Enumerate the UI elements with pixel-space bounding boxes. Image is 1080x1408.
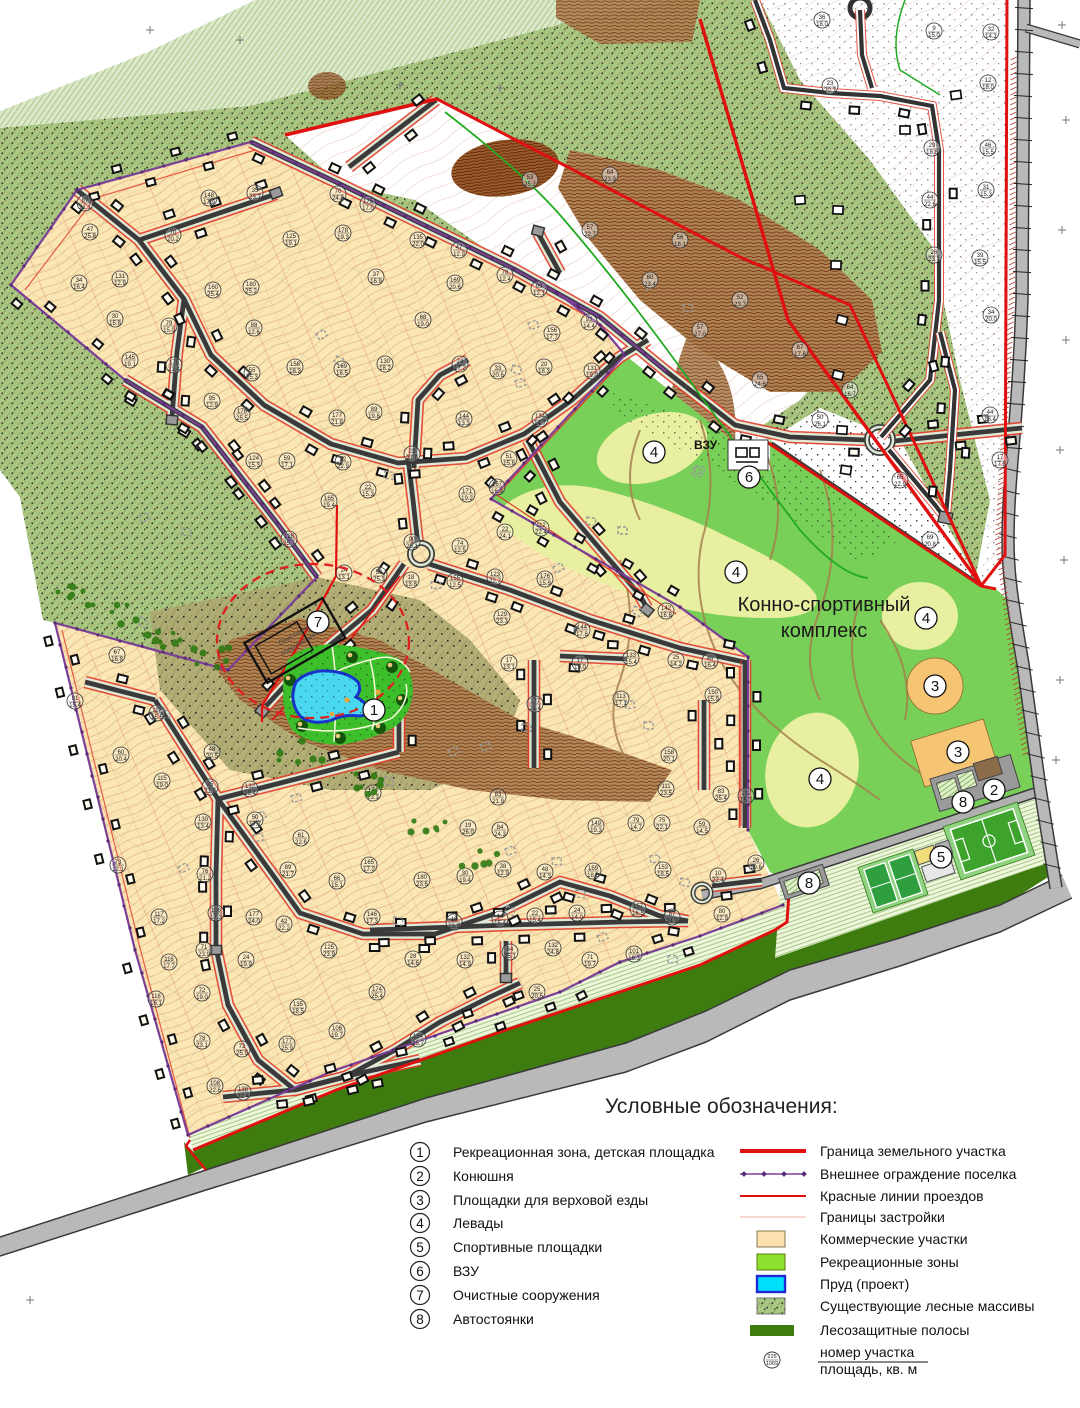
svg-text:21.9: 21.9 [492, 799, 504, 805]
svg-text:24: 24 [243, 955, 250, 961]
svg-text:17.0: 17.0 [362, 206, 374, 212]
svg-text:16.4: 16.4 [73, 285, 85, 291]
svg-text:19.0: 19.0 [586, 373, 598, 379]
svg-text:17: 17 [997, 455, 1004, 461]
svg-text:23.3: 23.3 [448, 924, 460, 930]
svg-text:24.0: 24.0 [248, 919, 260, 925]
svg-text:25.2: 25.2 [245, 289, 257, 295]
svg-text:64: 64 [607, 170, 614, 176]
svg-text:Рекреационные зоны: Рекреационные зоны [820, 1254, 959, 1270]
svg-text:19: 19 [465, 823, 472, 829]
svg-text:25.9: 25.9 [236, 1051, 248, 1057]
svg-text:38: 38 [500, 864, 507, 870]
svg-text:12.4: 12.4 [499, 277, 511, 283]
svg-text:18.0: 18.0 [816, 22, 828, 28]
svg-text:47: 47 [87, 227, 94, 233]
svg-text:23.3: 23.3 [496, 619, 508, 625]
svg-text:95: 95 [209, 396, 216, 402]
svg-text:17.1: 17.1 [281, 463, 293, 469]
svg-text:13.1: 13.1 [503, 665, 515, 671]
svg-text:55: 55 [757, 375, 764, 381]
svg-text:Площадки для верховой езды: Площадки для верховой езды [453, 1192, 648, 1208]
svg-text:16.9: 16.9 [370, 279, 382, 285]
svg-text:18.3: 18.3 [538, 369, 550, 375]
svg-text:12: 12 [985, 78, 992, 84]
svg-text:5: 5 [937, 849, 945, 866]
svg-text:25.1: 25.1 [406, 544, 418, 550]
svg-text:132: 132 [460, 955, 471, 961]
svg-text:16.9: 16.9 [491, 489, 503, 495]
svg-text:23.5: 23.5 [660, 791, 672, 797]
svg-text:Конюшня: Конюшня [453, 1168, 514, 1184]
svg-text:25.8: 25.8 [84, 234, 96, 240]
svg-text:Границы застройки: Границы застройки [820, 1209, 945, 1225]
svg-text:16.8: 16.8 [660, 613, 672, 619]
svg-text:23.1: 23.1 [928, 257, 940, 263]
svg-text:15.4: 15.4 [625, 660, 637, 666]
svg-text:4: 4 [816, 771, 824, 788]
svg-text:ВЗУ: ВЗУ [453, 1263, 479, 1279]
svg-text:Пруд (проект): Пруд (проект) [820, 1276, 909, 1292]
svg-text:15.3: 15.3 [248, 463, 260, 469]
svg-text:18.8: 18.8 [587, 873, 599, 879]
svg-text:17.3: 17.3 [210, 915, 222, 921]
svg-text:Автостоянки: Автостоянки [453, 1311, 534, 1327]
svg-text:15.5: 15.5 [151, 715, 163, 721]
svg-text:Коммерческие участки: Коммерческие участки [820, 1231, 968, 1247]
svg-text:17.2: 17.2 [153, 919, 165, 925]
svg-text:1: 1 [370, 702, 378, 719]
svg-text:17.8: 17.8 [576, 632, 588, 638]
svg-text:67: 67 [797, 345, 804, 351]
svg-text:50: 50 [817, 415, 824, 421]
svg-text:23: 23 [409, 449, 416, 455]
svg-text:19.7: 19.7 [331, 1033, 343, 1039]
svg-text:44: 44 [987, 410, 994, 416]
svg-text:Левады: Левады [453, 1215, 503, 1231]
svg-text:60: 60 [647, 275, 654, 281]
svg-text:6: 6 [745, 469, 753, 486]
svg-text:18.5: 18.5 [292, 1009, 304, 1015]
svg-text:180: 180 [417, 875, 428, 881]
svg-text:20: 20 [541, 362, 548, 368]
svg-text:17.7: 17.7 [163, 964, 175, 970]
svg-text:48: 48 [542, 867, 549, 873]
svg-text:135: 135 [293, 1002, 304, 1008]
svg-text:Граница земельного участка: Граница земельного участка [820, 1143, 1006, 1159]
svg-text:16.8: 16.8 [111, 657, 123, 663]
svg-text:6: 6 [416, 1264, 424, 1279]
svg-text:16.4: 16.4 [704, 663, 716, 669]
svg-text:125: 125 [286, 234, 297, 240]
svg-text:64: 64 [847, 385, 854, 391]
svg-text:25: 25 [673, 655, 680, 661]
svg-text:15.4: 15.4 [529, 918, 541, 924]
svg-text:17: 17 [506, 658, 513, 664]
svg-text:4: 4 [650, 444, 658, 461]
svg-text:23.4: 23.4 [168, 367, 180, 373]
svg-text:75: 75 [659, 818, 666, 824]
svg-text:Конно-спортивный: Конно-спортивный [738, 594, 911, 616]
svg-text:55: 55 [249, 368, 256, 374]
svg-text:14.2: 14.2 [670, 662, 682, 668]
svg-text:56: 56 [677, 235, 684, 241]
svg-text:19.0: 19.0 [156, 783, 168, 789]
svg-text:48: 48 [209, 747, 216, 753]
svg-text:24: 24 [457, 359, 464, 365]
svg-text:22.0: 22.0 [412, 242, 424, 248]
svg-text:153: 153 [658, 865, 669, 871]
svg-text:146: 146 [367, 912, 378, 918]
svg-text:12.6: 12.6 [248, 330, 260, 336]
svg-text:17.3: 17.3 [366, 919, 378, 925]
svg-text:15.4: 15.4 [494, 921, 506, 927]
svg-text:24.3: 24.3 [666, 919, 678, 925]
svg-text:17.1: 17.1 [615, 701, 627, 707]
svg-text:177: 177 [249, 912, 260, 918]
svg-text:134: 134 [535, 414, 546, 420]
svg-text:17.7: 17.7 [546, 335, 558, 341]
svg-text:23.4: 23.4 [644, 282, 656, 288]
svg-text:20.5: 20.5 [206, 754, 218, 760]
svg-text:20.1: 20.1 [663, 757, 675, 763]
svg-text:13.1: 13.1 [338, 575, 350, 581]
svg-text:17.2: 17.2 [363, 867, 375, 873]
svg-text:4: 4 [416, 1216, 424, 1231]
svg-text:23.9: 23.9 [604, 177, 616, 183]
svg-text:17: 17 [577, 658, 584, 664]
svg-text:17.2: 17.2 [454, 366, 466, 372]
svg-text:28: 28 [410, 954, 417, 960]
svg-text:12.1: 12.1 [112, 867, 124, 873]
svg-text:комплекс: комплекс [781, 620, 867, 642]
svg-text:14.3: 14.3 [539, 874, 551, 880]
svg-text:25.1: 25.1 [504, 954, 516, 960]
svg-text:34: 34 [76, 278, 83, 284]
svg-text:22.9: 22.9 [337, 464, 349, 470]
svg-text:115: 115 [157, 776, 167, 782]
svg-text:17.9: 17.9 [203, 200, 215, 206]
svg-text:30: 30 [112, 314, 119, 320]
svg-text:16.7: 16.7 [844, 392, 856, 398]
svg-text:22.4: 22.4 [712, 878, 724, 884]
svg-text:12.9: 12.9 [453, 252, 465, 258]
svg-text:19.1: 19.1 [285, 241, 297, 247]
svg-text:10: 10 [715, 871, 722, 877]
svg-text:19.7: 19.7 [584, 962, 596, 968]
svg-text:32: 32 [988, 27, 995, 33]
svg-text:25.2: 25.2 [524, 182, 536, 188]
svg-text:132: 132 [741, 791, 752, 797]
svg-text:46: 46 [707, 656, 714, 662]
svg-text:Спортивные площадки: Спортивные площадки [453, 1239, 602, 1255]
svg-text:24.1: 24.1 [499, 534, 511, 540]
svg-text:14.0: 14.0 [571, 915, 583, 921]
svg-text:165: 165 [364, 860, 375, 866]
svg-text:36: 36 [819, 15, 826, 21]
svg-text:19.0: 19.0 [196, 995, 208, 1001]
svg-text:16.1: 16.1 [150, 1001, 162, 1007]
svg-text:13.4: 13.4 [197, 824, 209, 830]
svg-text:15.8: 15.8 [109, 321, 121, 327]
svg-text:12.9: 12.9 [114, 281, 126, 287]
svg-text:15.9: 15.9 [707, 697, 719, 703]
svg-text:65: 65 [897, 475, 904, 481]
svg-text:8: 8 [805, 875, 813, 892]
svg-text:111: 111 [661, 784, 671, 790]
svg-text:124: 124 [249, 456, 260, 462]
svg-text:15.0: 15.0 [928, 33, 940, 39]
svg-text:21.0: 21.0 [406, 456, 418, 462]
svg-text:18: 18 [408, 575, 415, 581]
svg-text:20.6: 20.6 [449, 285, 461, 291]
svg-text:23: 23 [827, 81, 834, 87]
svg-text:99: 99 [536, 284, 543, 290]
svg-text:156: 156 [547, 328, 558, 334]
svg-text:20.4: 20.4 [115, 757, 127, 763]
svg-text:17.7: 17.7 [249, 822, 261, 828]
svg-text:34: 34 [988, 310, 995, 316]
svg-text:21.2: 21.2 [199, 876, 211, 882]
svg-text:70: 70 [335, 189, 342, 195]
svg-text:ВЗУ: ВЗУ [694, 438, 718, 452]
svg-text:25.5: 25.5 [236, 416, 248, 422]
svg-text:2: 2 [416, 1169, 424, 1184]
svg-text:13.8: 13.8 [405, 582, 417, 588]
svg-text:22.4: 22.4 [535, 530, 547, 536]
svg-text:35: 35 [252, 188, 259, 194]
svg-text:59: 59 [284, 456, 291, 462]
svg-text:22.9: 22.9 [894, 482, 906, 488]
svg-text:13.3: 13.3 [458, 421, 470, 427]
svg-text:14.4: 14.4 [583, 324, 595, 330]
svg-text:14.6: 14.6 [407, 961, 419, 967]
svg-text:3: 3 [931, 678, 939, 695]
svg-text:29: 29 [929, 143, 936, 149]
svg-text:19.0: 19.0 [574, 665, 586, 671]
svg-text:19.4: 19.4 [323, 503, 335, 509]
svg-text:57: 57 [697, 325, 704, 331]
svg-text:23.7: 23.7 [249, 195, 261, 201]
svg-text:15.0: 15.0 [163, 328, 175, 334]
svg-text:12.9: 12.9 [497, 871, 509, 877]
svg-text:23.9: 23.9 [323, 952, 335, 958]
svg-text:19.0: 19.0 [417, 322, 429, 328]
svg-text:132: 132 [245, 784, 256, 790]
svg-text:57: 57 [587, 225, 594, 231]
svg-text:50: 50 [376, 570, 383, 576]
svg-text:20.0: 20.0 [985, 317, 997, 323]
svg-text:24.3: 24.3 [494, 832, 506, 838]
svg-text:26.1: 26.1 [814, 422, 826, 428]
svg-text:113: 113 [616, 694, 626, 700]
svg-text:20.6: 20.6 [492, 373, 504, 379]
svg-text:Очистные сооружения: Очистные сооружения [453, 1287, 600, 1303]
svg-text:67: 67 [114, 650, 121, 656]
svg-text:23.9: 23.9 [198, 952, 210, 958]
svg-text:51: 51 [506, 454, 513, 460]
svg-text:17.8: 17.8 [994, 462, 1006, 468]
svg-text:22.2: 22.2 [278, 926, 290, 932]
svg-text:8: 8 [959, 794, 967, 811]
svg-text:15.8: 15.8 [503, 461, 515, 467]
svg-text:19.3: 19.3 [590, 828, 602, 834]
svg-text:83: 83 [718, 789, 725, 795]
svg-text:131: 131 [115, 274, 126, 280]
svg-text:14.9: 14.9 [459, 962, 471, 968]
svg-text:Лесозащитные полосы: Лесозащитные полосы [820, 1322, 969, 1338]
svg-text:23.1: 23.1 [196, 1043, 208, 1049]
svg-text:Красные линии проездов: Красные линии проездов [820, 1188, 984, 1204]
svg-text:20.8: 20.8 [924, 542, 936, 548]
svg-text:71: 71 [587, 955, 594, 961]
svg-text:15.3: 15.3 [362, 492, 374, 498]
svg-text:80: 80 [719, 909, 726, 915]
svg-text:площадь, кв. м: площадь, кв. м [820, 1361, 917, 1377]
svg-text:Существующие лесные массивы: Существующие лесные массивы [820, 1298, 1034, 1314]
svg-text:39: 39 [977, 253, 984, 259]
svg-text:15.9: 15.9 [539, 581, 551, 587]
svg-text:158: 158 [290, 362, 301, 368]
svg-text:24.8: 24.8 [547, 950, 559, 956]
svg-text:3: 3 [416, 1193, 424, 1208]
svg-text:18.8: 18.8 [926, 150, 938, 156]
svg-text:22.6: 22.6 [924, 202, 936, 208]
svg-text:12.9: 12.9 [716, 916, 728, 922]
svg-text:3: 3 [954, 744, 962, 761]
svg-text:2: 2 [990, 782, 998, 799]
svg-text:25.4: 25.4 [715, 796, 727, 802]
svg-text:15.1: 15.1 [331, 883, 343, 889]
svg-text:132: 132 [548, 943, 559, 949]
svg-text:16.5: 16.5 [632, 911, 644, 917]
svg-text:89: 89 [285, 865, 292, 871]
svg-text:25.3: 25.3 [246, 375, 258, 381]
svg-text:19.1: 19.1 [124, 362, 136, 368]
svg-text:160: 160 [208, 285, 219, 291]
svg-text:24.6: 24.6 [754, 382, 766, 388]
svg-text:130: 130 [198, 817, 209, 823]
svg-text:91: 91 [72, 696, 79, 702]
svg-text:номер участка: номер участка [820, 1344, 915, 1360]
svg-text:18.2: 18.2 [379, 366, 391, 372]
svg-text:16.5: 16.5 [336, 371, 348, 377]
svg-text:23.6: 23.6 [416, 882, 428, 888]
svg-text:27.0: 27.0 [694, 332, 706, 338]
svg-text:7: 7 [314, 614, 322, 631]
svg-text:112: 112 [536, 523, 546, 529]
svg-text:53: 53 [527, 175, 534, 181]
svg-text:19.8: 19.8 [368, 414, 380, 420]
svg-text:15.4: 15.4 [69, 703, 81, 709]
svg-text:26.0: 26.0 [462, 830, 474, 836]
svg-text:125: 125 [324, 945, 335, 951]
svg-text:14.5: 14.5 [696, 829, 708, 835]
svg-text:72: 72 [239, 1044, 246, 1050]
svg-text:22.4: 22.4 [237, 1094, 249, 1100]
svg-text:22.6: 22.6 [209, 1088, 221, 1094]
svg-text:4: 4 [732, 564, 740, 581]
svg-text:25: 25 [207, 782, 214, 788]
svg-text:22.7: 22.7 [489, 579, 501, 585]
svg-text:14.7: 14.7 [630, 825, 642, 831]
svg-text:5: 5 [416, 1240, 424, 1255]
svg-text:21.1: 21.1 [79, 205, 91, 211]
svg-text:17.8: 17.8 [794, 352, 806, 358]
svg-text:23.7: 23.7 [734, 302, 746, 308]
svg-text:12.9: 12.9 [206, 403, 218, 409]
svg-text:21.8: 21.8 [331, 420, 343, 426]
svg-text:130: 130 [380, 359, 391, 365]
svg-text:116: 116 [151, 994, 161, 1000]
svg-text:24.0: 24.0 [332, 196, 344, 202]
svg-text:129: 129 [497, 612, 508, 618]
svg-text:21.9: 21.9 [204, 789, 216, 795]
svg-text:19.2: 19.2 [461, 496, 473, 502]
svg-text:225: 225 [767, 1354, 776, 1360]
svg-text:25.9: 25.9 [281, 1046, 293, 1052]
svg-text:158: 158 [664, 750, 675, 756]
svg-text:15.0: 15.0 [740, 798, 752, 804]
svg-text:22.7: 22.7 [584, 232, 596, 238]
svg-text:64: 64 [507, 947, 514, 953]
svg-text:1: 1 [416, 1145, 424, 1160]
svg-text:25.4: 25.4 [371, 994, 383, 1000]
svg-text:25.7: 25.7 [283, 541, 295, 547]
svg-text:69: 69 [927, 535, 934, 541]
svg-text:7: 7 [416, 1288, 424, 1303]
svg-text:12.5: 12.5 [454, 548, 466, 554]
svg-text:135: 135 [413, 235, 424, 241]
svg-text:25.7: 25.7 [412, 1041, 424, 1047]
svg-text:50: 50 [252, 815, 259, 821]
svg-text:14.7: 14.7 [534, 421, 546, 427]
svg-text:37: 37 [373, 272, 380, 278]
svg-text:22.6: 22.6 [295, 840, 307, 846]
svg-text:21.4: 21.4 [529, 706, 541, 712]
svg-text:177: 177 [332, 413, 343, 419]
svg-text:20.2: 20.2 [167, 237, 179, 243]
svg-text:18.0: 18.0 [982, 85, 994, 91]
svg-text:15.5: 15.5 [974, 260, 986, 266]
svg-text:16.3: 16.3 [628, 956, 640, 962]
svg-text:1069: 1069 [766, 1361, 778, 1367]
svg-text:19.6: 19.6 [750, 865, 762, 871]
svg-text:12.1: 12.1 [533, 291, 545, 297]
svg-text:19.9: 19.9 [240, 962, 252, 968]
svg-text:169: 169 [337, 364, 348, 370]
svg-text:12.5: 12.5 [449, 583, 461, 589]
svg-text:142: 142 [661, 606, 672, 612]
svg-text:131: 131 [587, 366, 598, 372]
svg-text:15.3: 15.3 [980, 192, 992, 198]
svg-text:16.4: 16.4 [984, 417, 996, 423]
svg-text:18.5: 18.5 [657, 872, 669, 878]
svg-text:180: 180 [246, 282, 257, 288]
svg-text:4: 4 [922, 610, 930, 627]
svg-text:15.5: 15.5 [982, 150, 994, 156]
svg-text:14.1: 14.1 [985, 34, 997, 40]
svg-text:21.7: 21.7 [282, 872, 294, 878]
svg-text:87: 87 [669, 912, 676, 918]
svg-text:18.1: 18.1 [674, 242, 686, 248]
svg-text:20.6: 20.6 [531, 994, 543, 1000]
svg-text:19.4: 19.4 [244, 791, 256, 797]
svg-text:Рекреационная зона, детская пл: Рекреационная зона, детская площадка [453, 1144, 715, 1160]
svg-text:150: 150 [708, 690, 719, 696]
svg-text:14: 14 [497, 914, 504, 920]
svg-text:20.3: 20.3 [824, 88, 836, 94]
